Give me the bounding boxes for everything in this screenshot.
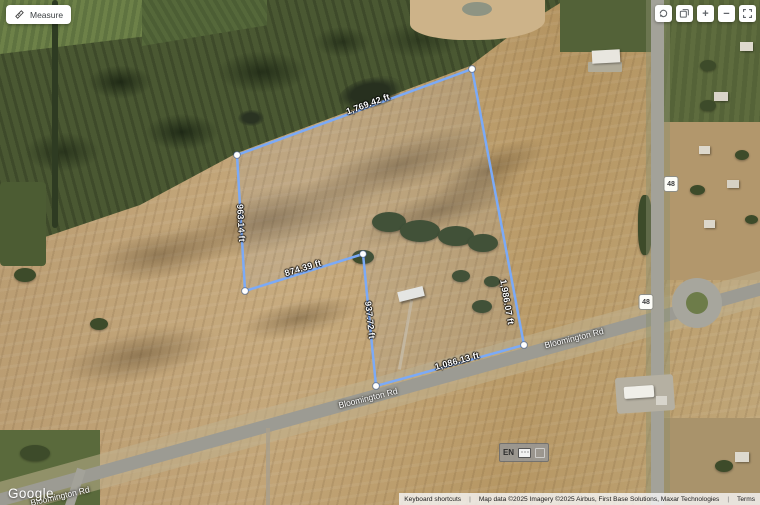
map-controls: + − <box>655 5 756 22</box>
keyboard-shortcuts-link[interactable]: Keyboard shortcuts <box>404 496 461 503</box>
measure-overlay <box>0 0 760 505</box>
map-data-attribution: Map data ©2025 Imagery ©2025 Airbus, Fir… <box>479 496 720 503</box>
rotate-view-button[interactable] <box>655 5 672 22</box>
divider: | <box>469 496 471 503</box>
measure-vertex[interactable] <box>373 383 380 390</box>
measure-polygon[interactable] <box>237 69 524 386</box>
attribution-bar: Keyboard shortcuts | Map data ©2025 Imag… <box>399 493 760 505</box>
fullscreen-icon <box>742 8 753 19</box>
measure-vertex[interactable] <box>234 152 241 159</box>
input-language-indicator[interactable]: EN <box>499 443 549 462</box>
layers-button[interactable] <box>676 5 693 22</box>
layout-grid-icon <box>535 448 545 458</box>
measure-distance-label: 963.14 ft <box>235 204 247 242</box>
layers-icon <box>679 8 690 19</box>
measure-vertex[interactable] <box>360 251 367 258</box>
measure-button-label: Measure <box>30 10 63 20</box>
terms-link[interactable]: Terms <box>737 496 755 503</box>
measure-vertex[interactable] <box>469 66 476 73</box>
zoom-in-button[interactable]: + <box>697 5 714 22</box>
measure-button[interactable]: Measure <box>6 5 71 24</box>
app-window: Bloomington Rd Bloomington Rd Bloomingto… <box>0 0 760 505</box>
zoom-out-button[interactable]: − <box>718 5 735 22</box>
map-canvas[interactable]: Bloomington Rd Bloomington Rd Bloomingto… <box>0 0 760 505</box>
rotate-icon <box>658 8 669 19</box>
keyboard-icon <box>518 448 531 458</box>
measure-vertex[interactable] <box>242 288 249 295</box>
fullscreen-button[interactable] <box>739 5 756 22</box>
language-code: EN <box>503 448 514 457</box>
measure-vertex[interactable] <box>521 342 528 349</box>
divider: | <box>727 496 729 503</box>
ruler-icon <box>14 9 25 20</box>
google-logo[interactable]: Google <box>8 486 54 501</box>
